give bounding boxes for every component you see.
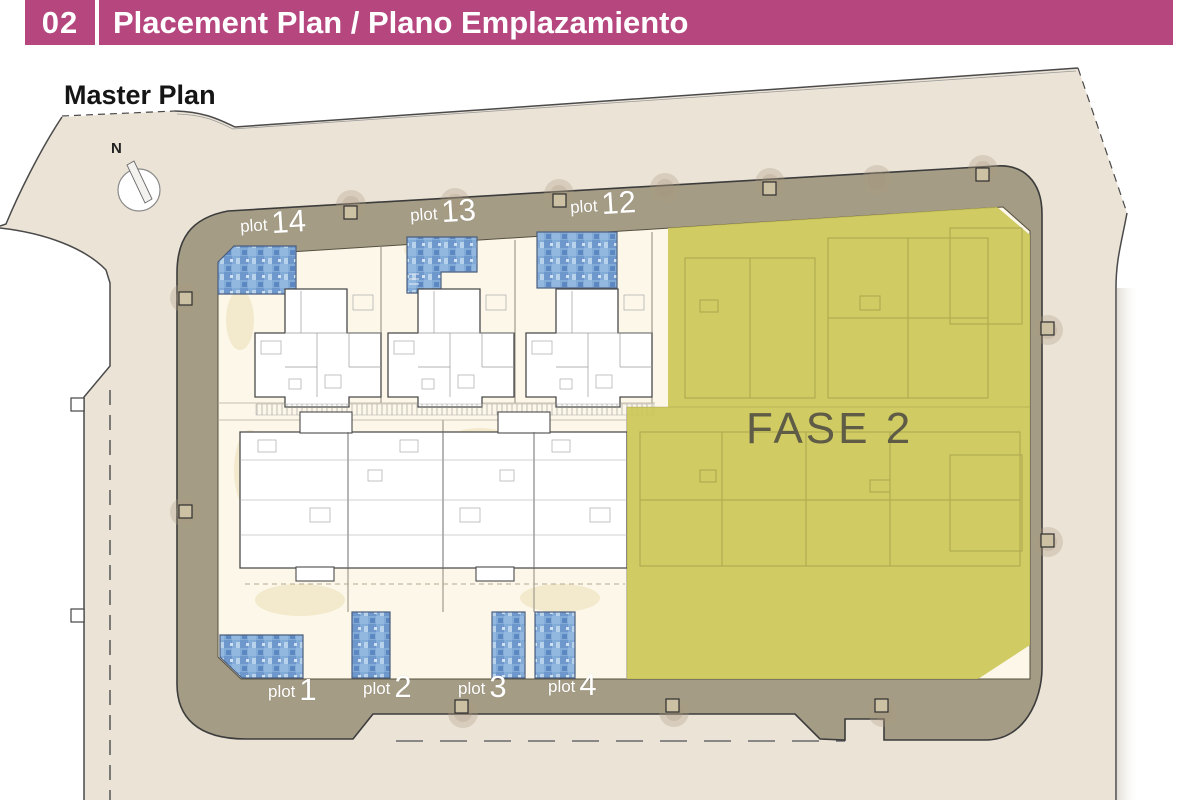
- placement-plan-page: 02 Placement Plan / Plano Emplazamiento …: [0, 0, 1200, 800]
- plot-label-4: plot 4: [548, 672, 597, 698]
- plot-label-14: plot 14: [239, 208, 306, 238]
- pool-plot-12: [537, 232, 617, 288]
- master-plan-title: Master Plan: [64, 80, 216, 111]
- right-edge-fade: [1117, 288, 1139, 800]
- top-row-buildings: [255, 289, 652, 407]
- site-plan-drawing: [0, 0, 1200, 800]
- plot-label-12: plot 12: [569, 189, 636, 219]
- bottom-row-building: [240, 412, 627, 584]
- pool-plot-4: [535, 612, 575, 678]
- header-section-number: 02: [25, 0, 95, 45]
- pool-plot-14: [218, 246, 296, 294]
- plot-label-3: plot 3: [458, 674, 507, 700]
- plot-label-1: plot 1: [268, 677, 317, 703]
- header-title: Placement Plan / Plano Emplazamiento: [99, 0, 1173, 45]
- plot-label-2: plot 2: [363, 674, 412, 700]
- plot-label-13: plot 13: [409, 197, 476, 227]
- pool-plot-2: [352, 612, 390, 678]
- phase2-label: FASE 2: [746, 404, 913, 454]
- north-label: N: [111, 140, 122, 157]
